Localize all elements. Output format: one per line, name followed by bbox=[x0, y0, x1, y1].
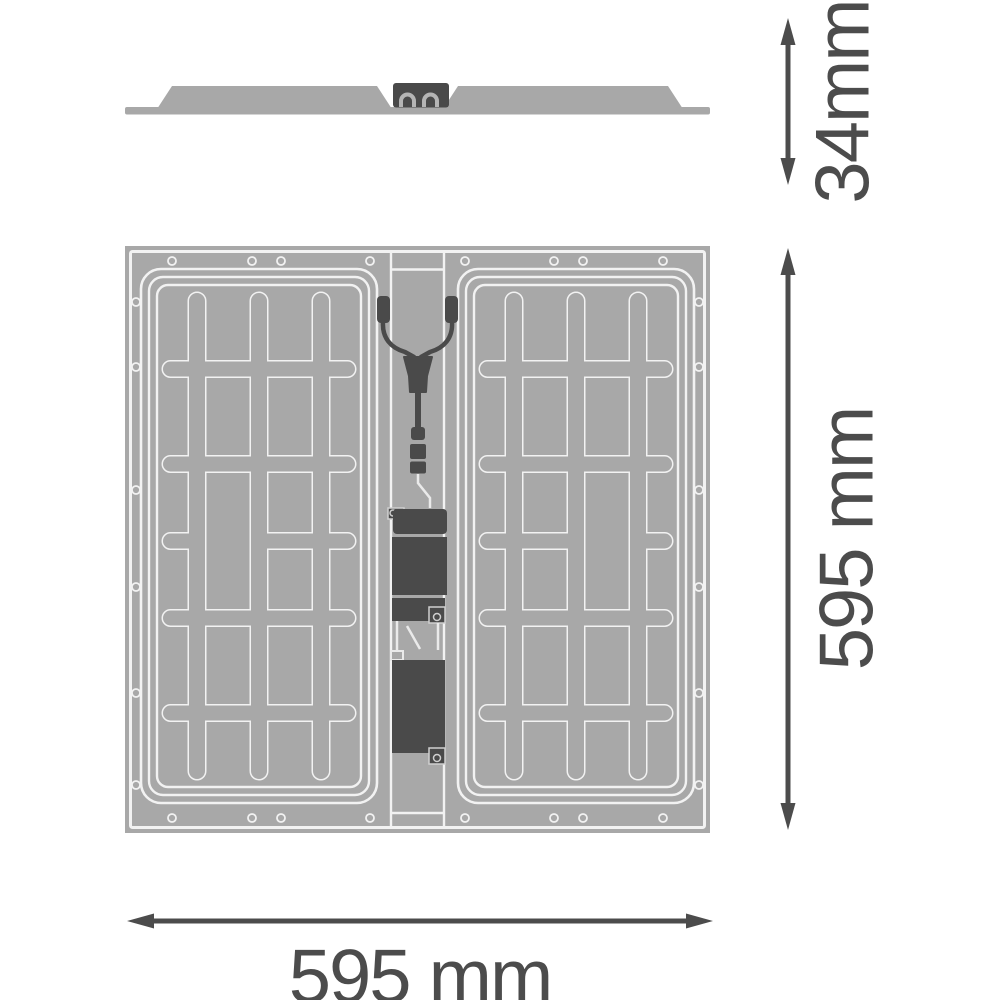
cable-bead bbox=[411, 427, 425, 440]
technical-drawing-page: 34mm 595 mm 595 mm bbox=[0, 0, 1000, 1000]
side-height-dimension-label: 34mm bbox=[800, 0, 887, 203]
side-view bbox=[125, 83, 710, 115]
mounting-clip bbox=[377, 296, 390, 323]
dimension-arrow-side-height-icon bbox=[781, 18, 796, 185]
dimension-arrow-panel-width-icon bbox=[127, 914, 713, 929]
inline-connector bbox=[410, 444, 426, 459]
panel-height-dimension-label: 595 mm bbox=[804, 408, 891, 671]
side-view-base-plate bbox=[125, 107, 710, 115]
mounting-clip bbox=[445, 296, 458, 323]
led-driver-2 bbox=[392, 660, 445, 764]
side-view-left-bump bbox=[158, 86, 391, 108]
side-view-right-bump bbox=[444, 86, 682, 108]
top-view bbox=[125, 246, 710, 833]
dimension-arrow-panel-height-icon bbox=[781, 248, 796, 830]
cable-stem bbox=[415, 392, 421, 427]
inline-connector bbox=[410, 462, 426, 474]
led-driver-1 bbox=[388, 508, 447, 623]
panel-width-dimension-label: 595 mm bbox=[289, 934, 552, 1000]
